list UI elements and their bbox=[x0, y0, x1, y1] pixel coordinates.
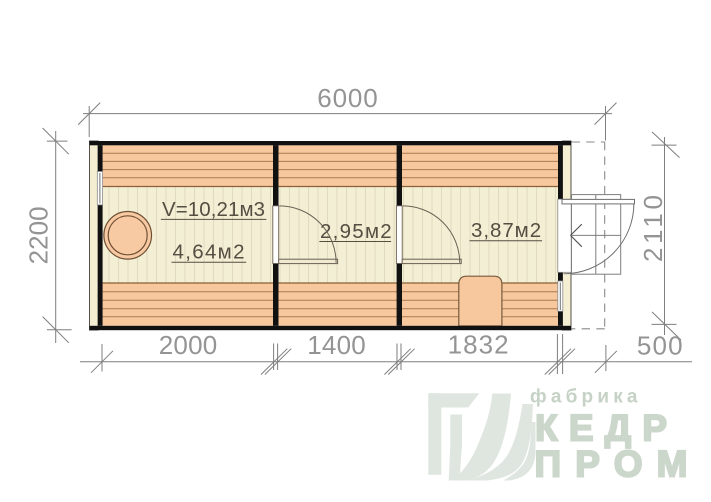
svg-text:1400: 1400 bbox=[307, 330, 366, 360]
svg-text:КЕДР: КЕДР bbox=[535, 407, 668, 448]
svg-text:2000: 2000 bbox=[159, 330, 218, 360]
svg-text:2200: 2200 bbox=[23, 206, 53, 264]
svg-text:3,87м2: 3,87м2 bbox=[471, 219, 541, 242]
svg-text:6000: 6000 bbox=[317, 83, 377, 113]
svg-text:500: 500 bbox=[637, 331, 683, 361]
svg-text:ПРОМ: ПРОМ bbox=[535, 444, 689, 485]
svg-text:V=10,21м3: V=10,21м3 bbox=[162, 198, 265, 221]
svg-text:4,64м2: 4,64м2 bbox=[173, 240, 245, 263]
svg-text:2110: 2110 bbox=[638, 195, 668, 262]
svg-text:фабрика: фабрика bbox=[530, 386, 642, 407]
svg-text:2,95м2: 2,95м2 bbox=[320, 220, 392, 243]
svg-text:1832: 1832 bbox=[448, 330, 509, 360]
